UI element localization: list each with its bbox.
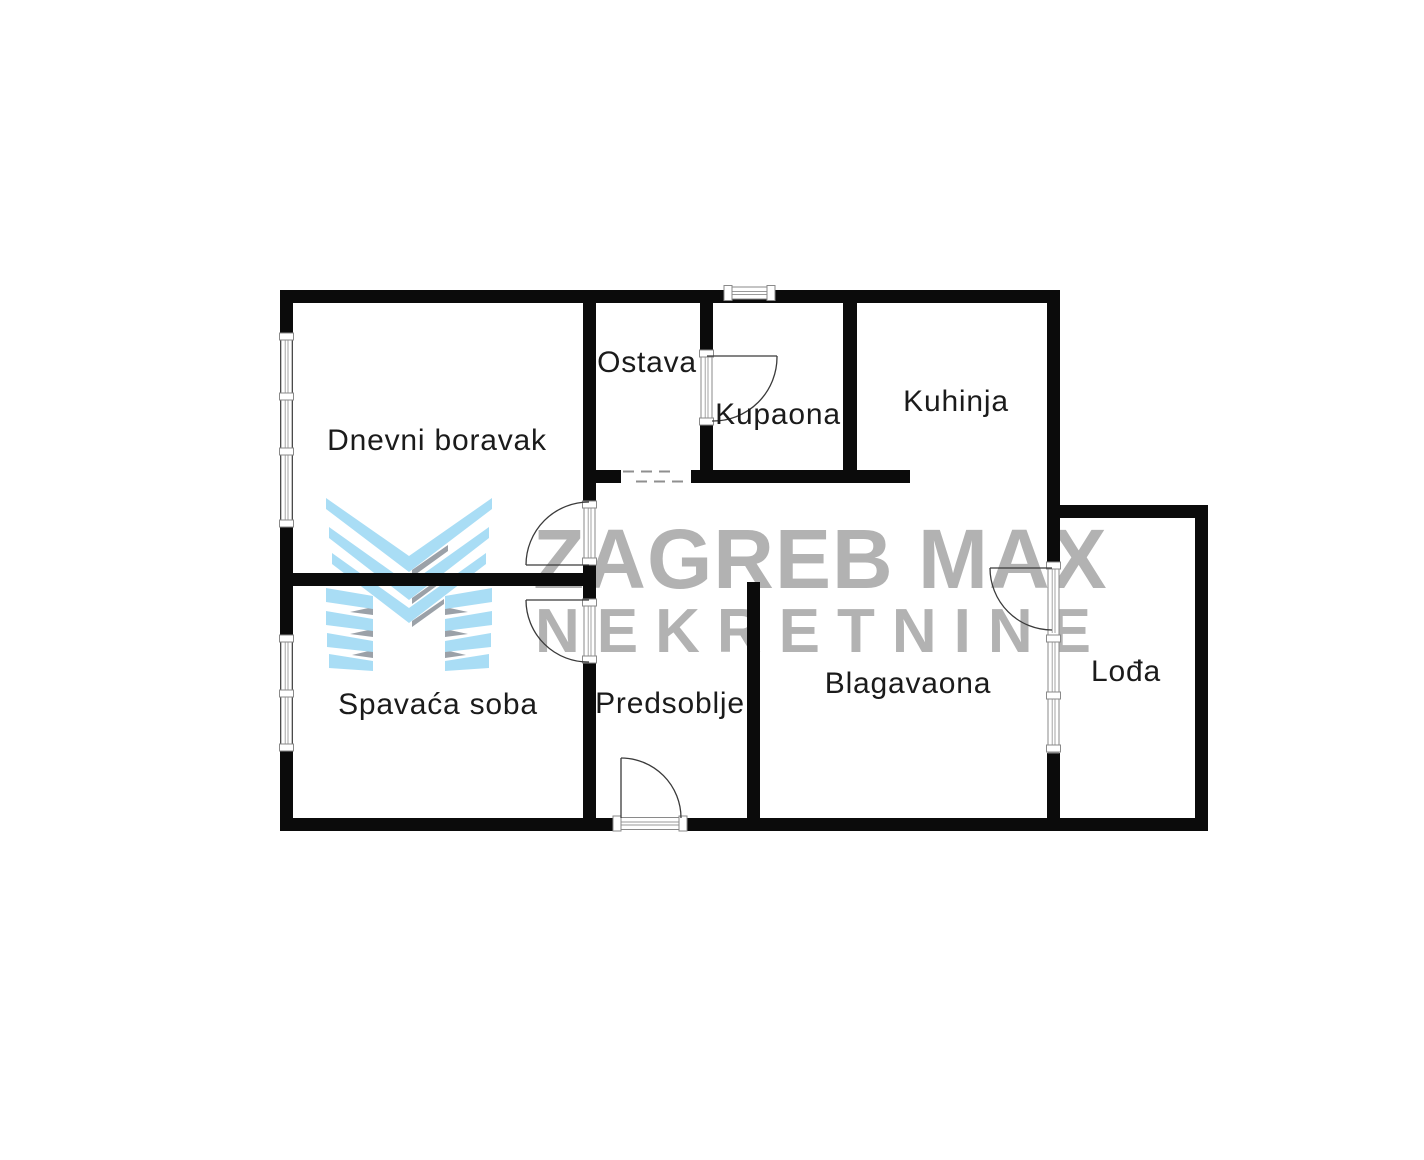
wall-ostava-kupaona-upper [700, 303, 713, 350]
wall-central-junction [583, 565, 596, 599]
wall-hall-top-2 [690, 470, 910, 483]
wall-right-lower [1047, 753, 1060, 831]
wall-hall-top-1 [596, 470, 623, 483]
logo-chevron-1 [326, 498, 492, 572]
window-lodja-side [1047, 635, 1061, 753]
window-spavaca-soba [280, 635, 294, 751]
room-label-spavaca-soba: Spavaća soba [338, 688, 538, 721]
wall-right-upper [1047, 290, 1060, 563]
wall-lodja-right [1195, 505, 1208, 831]
floor-plan-page: ZAGREB MAX NEKRETNINE [0, 0, 1424, 1160]
room-label-dnevni-boravak: Dnevni boravak [327, 424, 547, 457]
watermark-line2: NEKRETNINE [535, 597, 1108, 666]
door-entry [613, 758, 687, 831]
room-label-kuhinja: Kuhinja [903, 385, 1009, 418]
wall-divider-dnevni-spavaca [280, 573, 596, 586]
sliding-door-ostava [621, 469, 691, 484]
window-kupaona [724, 286, 775, 301]
room-label-predsoblje: Predsoblje [595, 687, 745, 720]
wall-predsoblje-blagavaona [747, 582, 760, 818]
room-label-lodja: Lođa [1091, 655, 1161, 688]
room-label-kupaona: Kupaona [715, 398, 841, 431]
wall-top [280, 290, 1060, 303]
wall-lodja-top [1047, 505, 1208, 518]
wall-bottom-left [280, 818, 613, 831]
watermark-line1: ZAGREB MAX [533, 512, 1108, 606]
floor-plan-canvas: ZAGREB MAX NEKRETNINE [0, 0, 1424, 1160]
wall-central-vertical-lower [583, 663, 596, 831]
wall-ostava-kupaona-lower [700, 425, 713, 470]
wall-kupaona-kuhinja [843, 303, 857, 483]
room-label-ostava: Ostava [597, 346, 697, 379]
wall-bottom-right [687, 818, 1208, 831]
door-swing-arc [621, 758, 681, 818]
room-label-blagavaona: Blagavaona [825, 667, 991, 700]
wall-central-vertical-upper [583, 290, 596, 501]
window-dnevni-boravak [280, 333, 294, 527]
